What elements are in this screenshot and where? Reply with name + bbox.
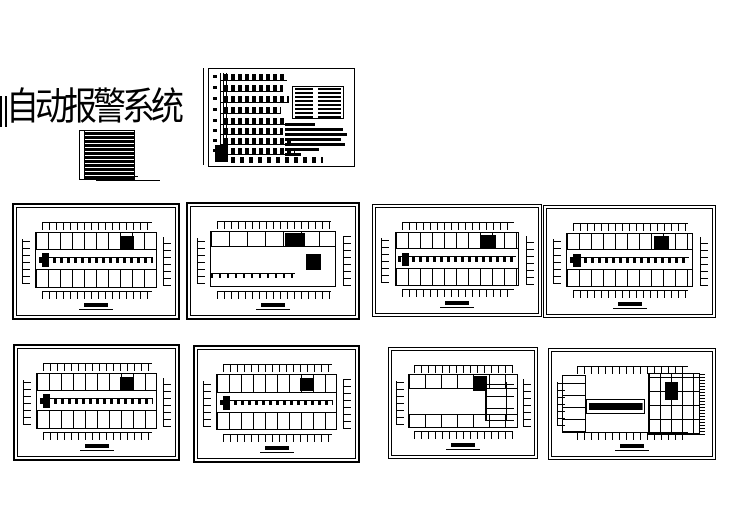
stair-core bbox=[654, 236, 669, 249]
floor-marker-square bbox=[213, 139, 217, 142]
floor-marker-square bbox=[213, 119, 217, 122]
rooms-grid-top bbox=[37, 374, 156, 391]
stair-core bbox=[300, 378, 314, 391]
stair-core bbox=[573, 254, 580, 268]
sheet-edge-line bbox=[203, 68, 204, 165]
rooms-grid-bottom bbox=[37, 410, 156, 427]
building-outline bbox=[210, 231, 336, 287]
dimension-ruler-right bbox=[163, 378, 171, 428]
floor-device-row bbox=[221, 85, 283, 92]
stair-core bbox=[43, 394, 50, 408]
dimension-ruler-left bbox=[22, 239, 30, 284]
stair-core bbox=[223, 396, 230, 410]
corridor-devices bbox=[398, 256, 515, 262]
table-extension-line bbox=[96, 176, 138, 177]
floor-plan-sheet-4 bbox=[543, 205, 716, 318]
drawing-title-mark bbox=[80, 444, 114, 451]
drawing-title-mark bbox=[79, 303, 113, 310]
floor-plan-sheet-1 bbox=[12, 203, 180, 320]
dimension-ruler-right bbox=[343, 379, 351, 429]
floor-marker-square bbox=[213, 108, 217, 111]
stair-core bbox=[120, 236, 134, 249]
drawing-title-mark bbox=[446, 443, 480, 450]
floor-device-row bbox=[221, 138, 291, 145]
corridor-devices bbox=[40, 398, 154, 404]
dimension-ruler-bottom bbox=[43, 432, 152, 440]
legend-table bbox=[292, 86, 344, 119]
notes-text-block bbox=[285, 123, 351, 158]
table-extension-line bbox=[96, 180, 160, 181]
building-outline bbox=[395, 232, 519, 286]
building-outline bbox=[566, 233, 693, 287]
dimension-ruler-bottom bbox=[402, 289, 515, 297]
rooms-grid-bottom bbox=[396, 268, 518, 285]
corridor-devices bbox=[39, 257, 154, 263]
control-panel-block bbox=[215, 145, 228, 162]
note-line bbox=[285, 123, 315, 126]
connecting-corridor bbox=[586, 399, 646, 414]
stair-core bbox=[42, 253, 49, 267]
right-wing-rooms bbox=[485, 382, 514, 421]
dimension-ruler-left bbox=[197, 238, 205, 284]
dimension-ruler-bottom bbox=[414, 431, 513, 439]
rooms-grid-bottom bbox=[567, 269, 692, 286]
floor-device-row bbox=[221, 128, 283, 135]
building-outline bbox=[216, 374, 337, 430]
dimension-ruler-left bbox=[23, 380, 31, 425]
cad-drawing-set-preview: 自动报警系统 bbox=[0, 0, 749, 530]
device-schedule-table bbox=[79, 130, 135, 180]
drawing-title-mark bbox=[260, 446, 294, 453]
roof-plan-sheet bbox=[548, 348, 716, 460]
dimension-ruler-bottom bbox=[573, 290, 688, 298]
dimension-ruler-right bbox=[526, 236, 534, 285]
hatch-band bbox=[700, 373, 705, 435]
stair-core bbox=[306, 254, 321, 270]
drawing-title-mark bbox=[613, 302, 647, 309]
floor-plan-sheet-2 bbox=[186, 202, 360, 320]
dimension-ruler-top bbox=[414, 365, 513, 373]
dimension-ruler-top bbox=[223, 364, 332, 372]
rooms-grid-top bbox=[396, 233, 518, 250]
drawing-title-mark bbox=[440, 301, 474, 308]
stair-core bbox=[473, 376, 487, 391]
note-line bbox=[285, 153, 301, 156]
floor-plan-sheet-6 bbox=[193, 345, 360, 463]
dimension-ruler-bottom bbox=[223, 434, 332, 442]
note-line bbox=[285, 143, 345, 146]
dimension-ruler-bottom bbox=[42, 291, 152, 299]
stair-core bbox=[285, 233, 305, 247]
floor-marker-square bbox=[213, 97, 217, 100]
dimension-ruler-top bbox=[43, 363, 152, 371]
dimension-ruler-top bbox=[217, 221, 331, 229]
dimension-ruler-right bbox=[163, 237, 171, 287]
floor-plan-sheet-3 bbox=[372, 204, 542, 317]
stair-core bbox=[120, 377, 134, 390]
corridor-devices bbox=[570, 257, 690, 263]
floor-marker-square bbox=[213, 86, 217, 89]
drawing-title-mark bbox=[256, 303, 290, 310]
dimension-ruler-left bbox=[553, 239, 561, 283]
dimension-ruler-bottom bbox=[217, 291, 331, 299]
floor-marker-square bbox=[213, 75, 217, 78]
dimension-ruler-top bbox=[402, 222, 515, 230]
page-title: 自动报警系统 bbox=[6, 76, 180, 131]
note-line bbox=[285, 133, 347, 136]
note-line bbox=[285, 128, 343, 131]
left-wing-outline bbox=[562, 375, 586, 432]
rooms-grid-top bbox=[211, 232, 335, 247]
dimension-ruler-left bbox=[381, 238, 389, 282]
note-line bbox=[285, 148, 319, 151]
floor-device-row bbox=[221, 74, 287, 81]
floor-device-row bbox=[221, 96, 289, 103]
stair-core bbox=[402, 253, 409, 267]
roof-core-block bbox=[665, 382, 678, 400]
dimension-ruler-right bbox=[700, 237, 708, 286]
floor-device-row bbox=[221, 148, 295, 155]
drawing-title-mark bbox=[615, 444, 649, 451]
floor-device-row bbox=[221, 118, 287, 125]
building-outline bbox=[408, 374, 518, 428]
dimension-ruler-left bbox=[203, 381, 211, 427]
rooms-grid-bottom bbox=[36, 269, 155, 286]
dimension-ruler-top bbox=[573, 223, 688, 231]
riser-diagram-sheet bbox=[208, 68, 355, 167]
building-outline bbox=[36, 373, 157, 428]
corridor-devices bbox=[211, 273, 295, 277]
floor-device-row bbox=[221, 107, 281, 114]
floor-marker-square bbox=[213, 129, 217, 132]
rooms-grid-top bbox=[36, 233, 155, 250]
stair-core bbox=[481, 235, 496, 248]
floor-plan-sheet-7 bbox=[388, 347, 538, 459]
dimension-ruler-left bbox=[396, 381, 404, 425]
rooms-grid-top bbox=[567, 234, 692, 251]
building-outline bbox=[35, 232, 156, 287]
rooms-grid-bottom bbox=[217, 412, 336, 429]
dimension-ruler-right bbox=[523, 379, 531, 427]
corridor-devices bbox=[220, 400, 334, 406]
floor-plan-sheet-5 bbox=[13, 344, 180, 461]
dimension-ruler-right bbox=[343, 236, 351, 286]
dimension-ruler-top bbox=[42, 222, 152, 230]
rooms-grid-top bbox=[217, 375, 336, 392]
note-line bbox=[285, 138, 341, 141]
